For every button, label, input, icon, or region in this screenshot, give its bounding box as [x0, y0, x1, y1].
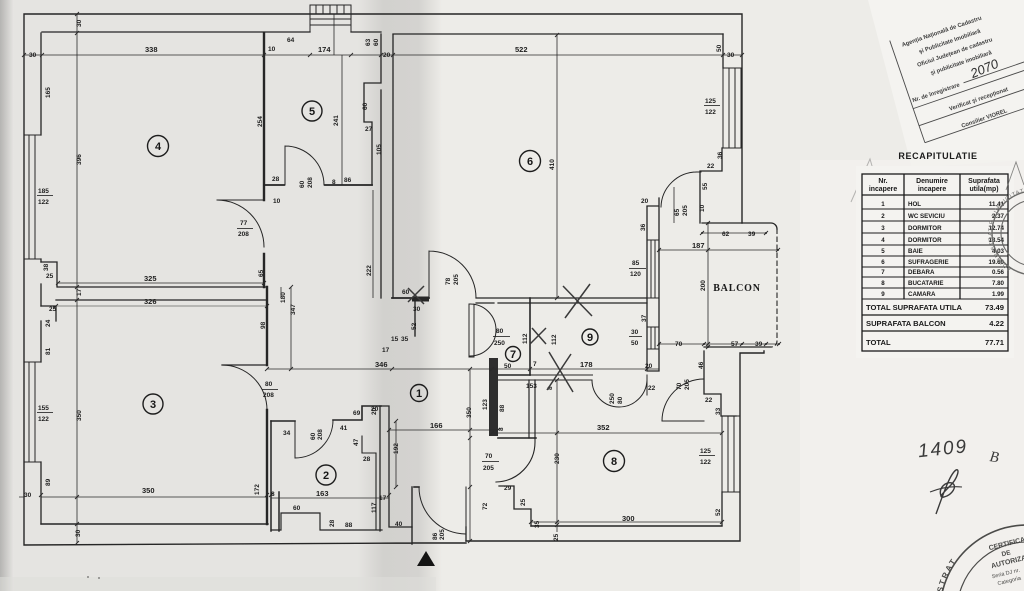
svg-text:DORMITOR: DORMITOR [908, 237, 942, 244]
svg-text:163: 163 [316, 489, 329, 498]
svg-text:69: 69 [353, 410, 361, 417]
svg-text:39: 39 [755, 341, 763, 348]
svg-text:52: 52 [411, 322, 418, 330]
svg-text:81: 81 [45, 347, 52, 355]
svg-text:65: 65 [674, 208, 681, 216]
svg-text:350: 350 [142, 486, 155, 495]
svg-text:29: 29 [504, 485, 512, 492]
svg-text:174: 174 [318, 45, 331, 54]
svg-text:73.49: 73.49 [985, 303, 1004, 312]
svg-text:BAIE: BAIE [908, 248, 923, 255]
svg-text:50: 50 [716, 44, 723, 52]
svg-text:40: 40 [395, 521, 403, 528]
svg-text:22: 22 [707, 163, 715, 170]
svg-text:50: 50 [631, 340, 639, 347]
svg-text:185: 185 [38, 188, 49, 195]
svg-text:10: 10 [268, 46, 276, 53]
svg-text:0.56: 0.56 [992, 269, 1005, 276]
svg-text:BALCON: BALCON [713, 283, 761, 294]
svg-text:TOTAL SUPRAFATA UTILA: TOTAL SUPRAFATA UTILA [866, 303, 963, 312]
svg-text:86: 86 [432, 532, 439, 540]
svg-text:250: 250 [609, 393, 616, 404]
svg-text:4: 4 [881, 237, 885, 244]
svg-text:RECAPITULATIE: RECAPITULATIE [898, 151, 977, 161]
svg-text:6: 6 [881, 259, 885, 266]
svg-text:30: 30 [24, 492, 32, 499]
svg-text:36: 36 [717, 151, 724, 159]
svg-text:78: 78 [445, 277, 452, 285]
svg-text:17: 17 [76, 288, 83, 296]
svg-text:incapere: incapere [918, 186, 947, 193]
svg-text:37: 37 [641, 314, 648, 322]
svg-text:122: 122 [38, 416, 49, 423]
svg-text:7: 7 [533, 361, 537, 368]
svg-text:41: 41 [340, 425, 348, 432]
svg-text:8: 8 [271, 491, 275, 498]
svg-text:180: 180 [280, 292, 287, 303]
svg-text:28: 28 [329, 519, 336, 527]
svg-text:172: 172 [254, 484, 261, 495]
svg-text:85: 85 [632, 260, 640, 267]
svg-text:HOL: HOL [908, 201, 921, 208]
svg-text:20: 20 [641, 198, 649, 205]
svg-text:3: 3 [881, 225, 885, 232]
svg-text:200: 200 [700, 280, 707, 291]
svg-text:25: 25 [49, 306, 57, 313]
svg-text:35: 35 [534, 520, 541, 528]
svg-text:22: 22 [648, 385, 656, 392]
svg-text:6: 6 [527, 156, 533, 168]
svg-text:30: 30 [76, 19, 83, 27]
svg-text:410: 410 [549, 159, 556, 170]
svg-text:4: 4 [155, 141, 162, 153]
svg-text:205: 205 [453, 274, 460, 285]
svg-text:25: 25 [553, 533, 560, 541]
svg-text:208: 208 [238, 231, 249, 238]
svg-text:BUCATARIE: BUCATARIE [908, 280, 944, 287]
svg-text:250: 250 [494, 340, 505, 347]
svg-text:205: 205 [439, 529, 446, 540]
svg-text:17: 17 [379, 495, 387, 502]
svg-text:50: 50 [504, 363, 512, 370]
svg-text:112: 112 [522, 333, 529, 344]
svg-text:347: 347 [290, 304, 297, 315]
svg-text:346: 346 [375, 360, 388, 369]
svg-text:350: 350 [466, 407, 473, 418]
svg-text:5: 5 [881, 248, 885, 255]
svg-text:125: 125 [700, 448, 711, 455]
svg-text:30: 30 [413, 306, 421, 313]
svg-text:4.22: 4.22 [989, 319, 1004, 328]
svg-text:396: 396 [76, 154, 83, 165]
svg-text:325: 325 [144, 274, 157, 283]
svg-text:55: 55 [702, 182, 709, 190]
svg-text:17: 17 [382, 347, 390, 354]
svg-text:10: 10 [273, 198, 281, 205]
svg-text:230: 230 [554, 453, 561, 464]
svg-text:80: 80 [496, 328, 504, 335]
svg-text:300: 300 [622, 514, 635, 523]
svg-text:122: 122 [705, 109, 716, 116]
svg-text:Nr.: Nr. [878, 178, 887, 185]
svg-text:77: 77 [240, 220, 248, 227]
svg-text:Denumire: Denumire [916, 178, 948, 185]
svg-text:60: 60 [310, 432, 317, 440]
svg-text:CAMARA: CAMARA [908, 291, 936, 298]
svg-text:incapere: incapere [869, 186, 898, 193]
svg-text:9: 9 [881, 291, 885, 298]
svg-text:166: 166 [430, 421, 443, 430]
svg-text:2: 2 [881, 213, 885, 220]
svg-text:72: 72 [482, 502, 489, 510]
svg-text:178: 178 [580, 360, 593, 369]
svg-text:120: 120 [630, 271, 641, 278]
svg-text:1: 1 [881, 201, 885, 208]
svg-text:7: 7 [510, 349, 516, 361]
svg-text:52: 52 [715, 508, 722, 516]
svg-text:326: 326 [144, 297, 157, 306]
svg-text:30: 30 [727, 52, 735, 59]
svg-text:8: 8 [332, 179, 336, 186]
svg-text:Suprafata: Suprafata [968, 178, 1000, 185]
svg-text:WC SEVICIU: WC SEVICIU [908, 213, 945, 220]
svg-text:89: 89 [45, 478, 52, 486]
svg-text:80: 80 [617, 396, 624, 404]
svg-text:192: 192 [393, 443, 400, 454]
svg-text:123: 123 [482, 399, 489, 410]
svg-text:153: 153 [526, 383, 537, 390]
svg-text:7: 7 [881, 269, 885, 276]
svg-text:122: 122 [700, 459, 711, 466]
svg-text:350: 350 [76, 410, 83, 421]
svg-text:8: 8 [881, 280, 885, 287]
svg-text:33: 33 [715, 407, 722, 415]
svg-text:241: 241 [333, 115, 340, 126]
svg-text:SUPRAFATA BALCON: SUPRAFATA BALCON [866, 319, 946, 328]
svg-text:62: 62 [722, 231, 730, 238]
svg-text:208: 208 [263, 392, 274, 399]
svg-text:60: 60 [362, 102, 369, 110]
svg-text:165: 165 [45, 87, 52, 98]
svg-text:25: 25 [46, 273, 54, 280]
svg-text:254: 254 [257, 116, 264, 127]
svg-text:38: 38 [43, 263, 50, 271]
svg-text:57: 57 [731, 341, 739, 348]
svg-text:15: 15 [391, 336, 399, 343]
svg-text:utila(mp): utila(mp) [969, 186, 998, 193]
svg-text:205: 205 [682, 205, 689, 216]
svg-text:208: 208 [307, 177, 314, 188]
svg-text:36: 36 [640, 223, 647, 231]
svg-text:60: 60 [402, 289, 410, 296]
svg-text:122: 122 [38, 199, 49, 206]
svg-text:8: 8 [498, 427, 505, 431]
svg-text:88: 88 [345, 522, 353, 529]
svg-text:60: 60 [373, 38, 380, 46]
svg-text:5: 5 [309, 106, 315, 118]
svg-text:70: 70 [676, 382, 683, 390]
svg-text:27: 27 [365, 126, 373, 133]
svg-text:34: 34 [283, 430, 291, 437]
svg-text:352: 352 [597, 423, 610, 432]
svg-text:70: 70 [485, 453, 493, 460]
svg-text:105: 105 [376, 144, 383, 155]
svg-text:60: 60 [299, 180, 306, 188]
svg-text:205: 205 [684, 379, 691, 390]
svg-text:10: 10 [699, 204, 706, 212]
svg-text:187: 187 [692, 241, 705, 250]
svg-text:208: 208 [317, 429, 324, 440]
svg-text:30: 30 [631, 329, 639, 336]
svg-text:88: 88 [499, 404, 506, 412]
svg-text:7.80: 7.80 [992, 280, 1005, 287]
svg-text:46: 46 [698, 361, 705, 369]
svg-text:522: 522 [515, 45, 528, 54]
svg-text:2: 2 [323, 470, 329, 482]
svg-text:70: 70 [675, 341, 683, 348]
svg-text:25: 25 [520, 498, 527, 506]
svg-text:64: 64 [287, 37, 295, 44]
svg-text:63: 63 [365, 38, 372, 46]
svg-text:8: 8 [611, 456, 617, 468]
svg-text:80: 80 [265, 381, 273, 388]
svg-text:20: 20 [645, 363, 653, 370]
svg-text:98: 98 [260, 321, 267, 329]
svg-text:47: 47 [353, 438, 360, 446]
svg-text:35: 35 [401, 336, 409, 343]
svg-text:20: 20 [383, 52, 391, 59]
svg-text:30: 30 [75, 529, 82, 537]
svg-text:205: 205 [483, 465, 494, 472]
svg-text:86: 86 [344, 177, 352, 184]
svg-text:DORMITOR: DORMITOR [908, 225, 942, 232]
svg-text:30: 30 [29, 52, 37, 59]
svg-text:60: 60 [293, 505, 301, 512]
svg-text:65: 65 [258, 269, 265, 277]
svg-text:24: 24 [45, 319, 52, 327]
svg-text:1: 1 [416, 388, 422, 400]
svg-text:DEBARA: DEBARA [908, 269, 935, 276]
svg-text:SUFRAGERIE: SUFRAGERIE [908, 259, 949, 266]
svg-text:1.99: 1.99 [992, 291, 1005, 298]
svg-text:338: 338 [145, 45, 158, 54]
svg-text:125: 125 [705, 98, 716, 105]
svg-text:77.71: 77.71 [985, 338, 1005, 347]
svg-text:28: 28 [363, 456, 371, 463]
svg-text:155: 155 [38, 405, 49, 412]
svg-text:22: 22 [705, 397, 713, 404]
svg-text:222: 222 [366, 265, 373, 276]
svg-text:39: 39 [748, 231, 756, 238]
svg-text:20: 20 [371, 407, 378, 415]
svg-text:117: 117 [371, 502, 378, 513]
svg-text:3: 3 [150, 399, 156, 411]
svg-text:TOTAL: TOTAL [866, 338, 891, 347]
svg-text:9: 9 [587, 332, 593, 344]
svg-text:112: 112 [551, 334, 558, 345]
svg-text:28: 28 [272, 176, 280, 183]
